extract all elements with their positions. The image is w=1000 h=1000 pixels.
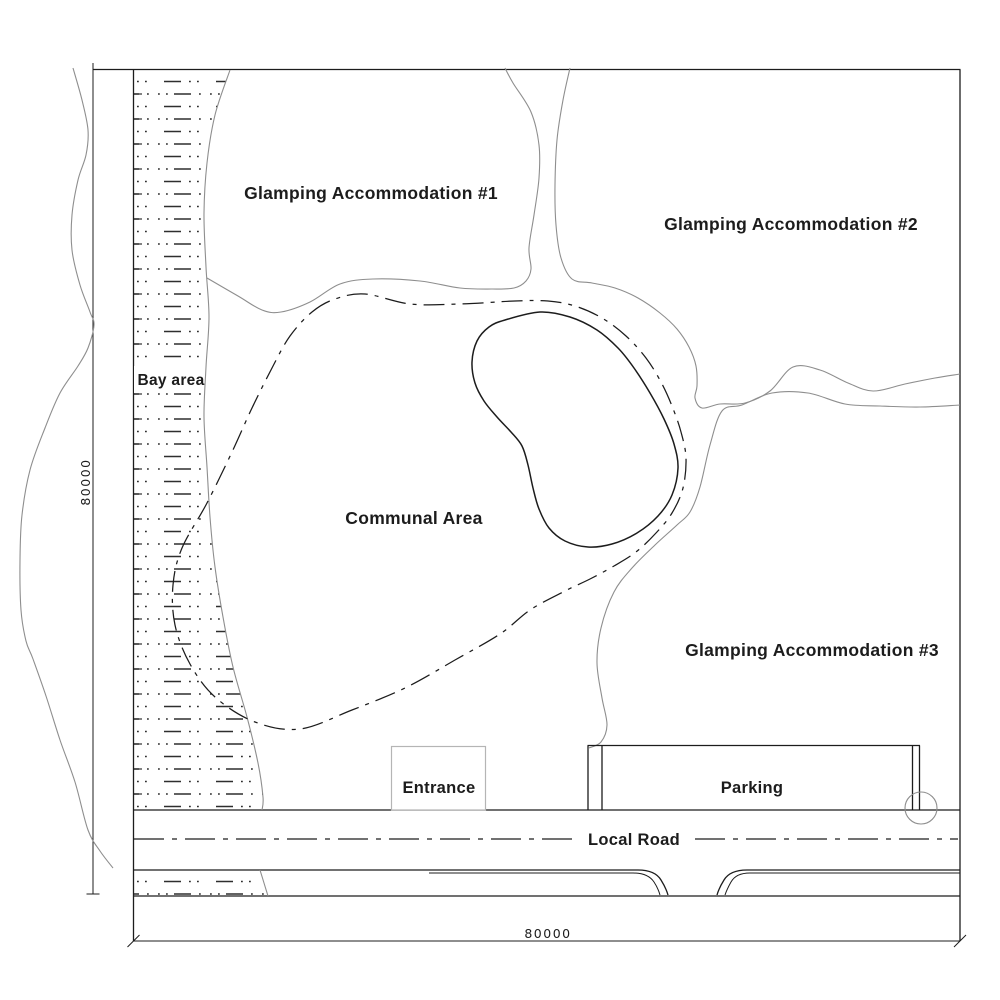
parking-outline-sides [588,746,920,811]
label-parking: Parking [721,779,784,797]
label-local-road: Local Road [588,831,680,849]
label-bay-area: Bay area [137,372,204,389]
label-accommodation-1: Glamping Accommodation #1 [244,183,498,203]
dimension-height-value: 80000 [78,458,93,505]
label-entrance: Entrance [402,779,475,797]
road-edge-bottom-right [717,870,960,895]
verge-edge-right [725,873,960,895]
offsite-contour-line [20,68,113,868]
bay-area-hatch-below-road [134,871,267,895]
verge-edge-left [429,873,660,895]
parking-turning-circle [905,792,937,824]
site-plan: Glamping Accommodation #1 Glamping Accom… [0,0,1000,1000]
label-accommodation-3: Glamping Accommodation #3 [685,640,939,660]
site-plan-svg: Glamping Accommodation #1 Glamping Accom… [0,0,1000,1000]
pond-outline [472,312,678,547]
label-communal-area: Communal Area [345,508,482,528]
bay-area-hatch [134,70,264,810]
label-accommodation-2: Glamping Accommodation #2 [664,214,918,234]
dimension-width-value: 80000 [524,926,571,941]
